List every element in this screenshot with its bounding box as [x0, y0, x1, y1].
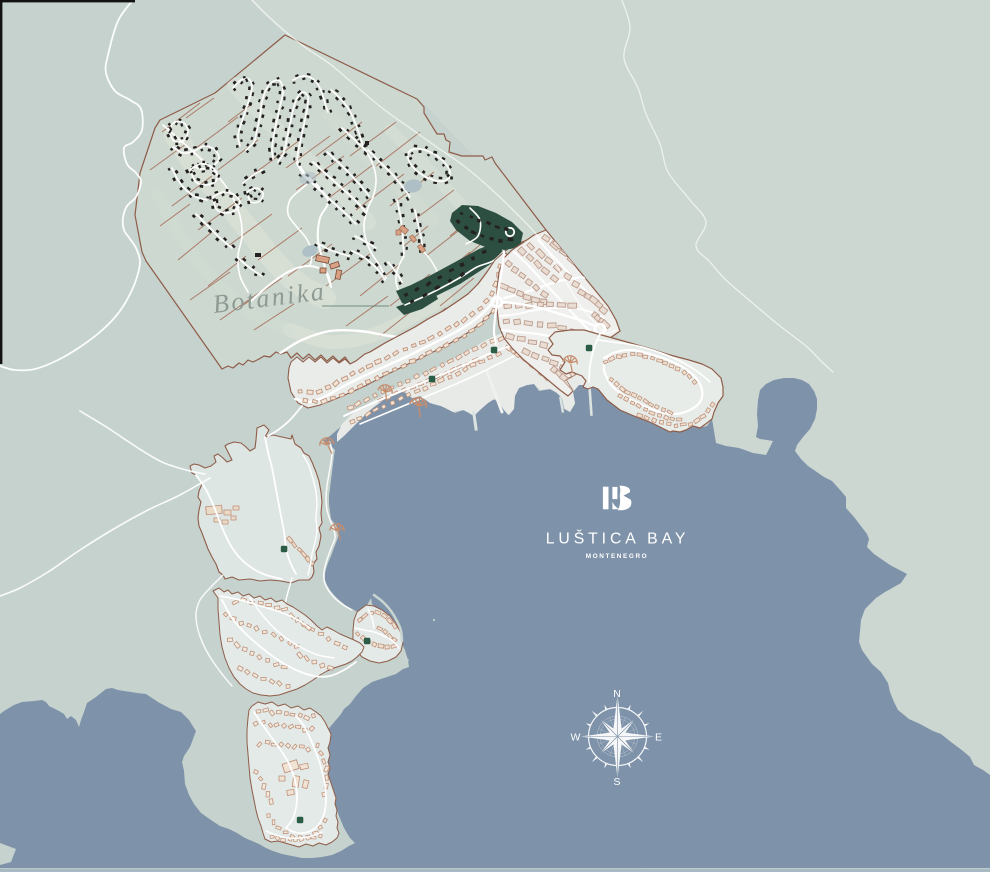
svg-text:N: N	[613, 688, 621, 700]
svg-text:W: W	[571, 732, 581, 744]
svg-text:LUŠTICA BAY: LUŠTICA BAY	[546, 529, 690, 548]
svg-text:MONTENEGRO: MONTENEGRO	[586, 553, 649, 560]
svg-text:E: E	[655, 732, 662, 744]
svg-text:S: S	[613, 776, 620, 788]
